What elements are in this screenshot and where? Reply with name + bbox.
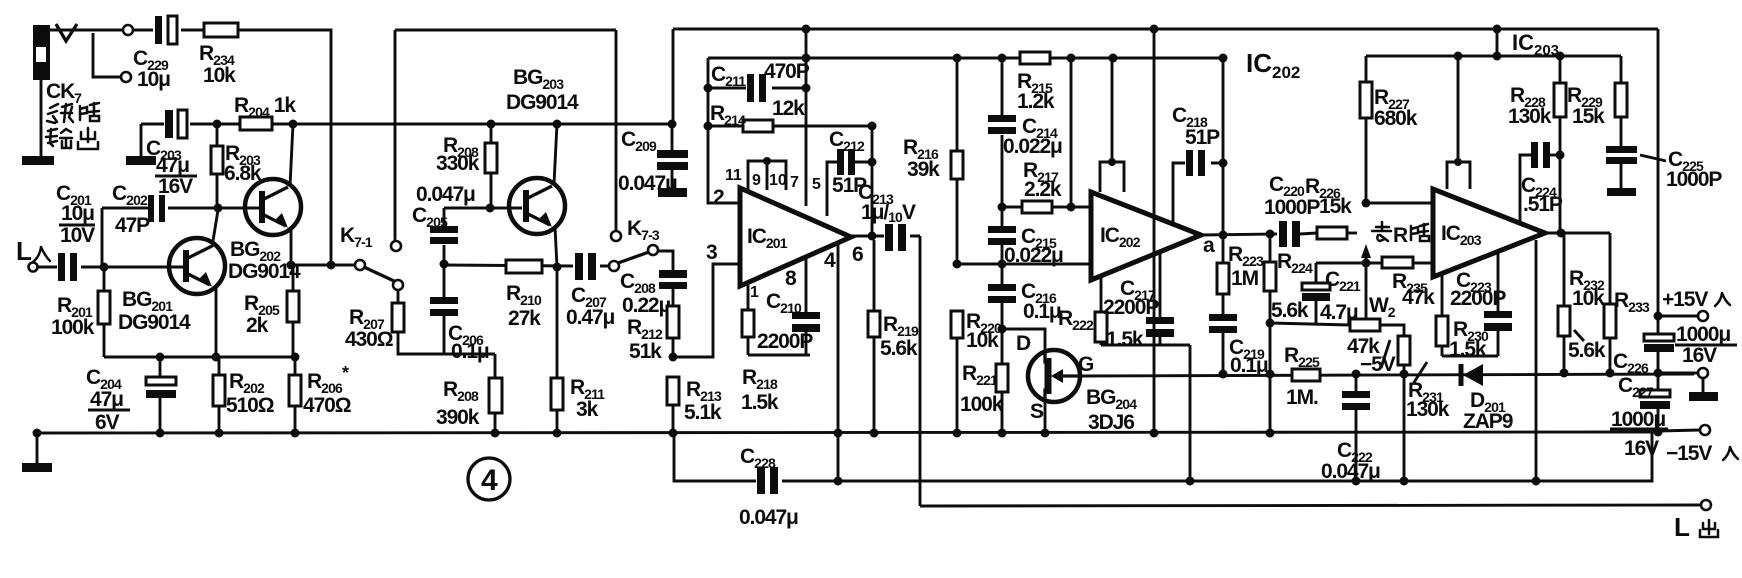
svg-text:.51P: .51P xyxy=(1523,193,1563,216)
svg-text:330k: 330k xyxy=(436,152,480,175)
svg-text:DG9014: DG9014 xyxy=(506,91,579,114)
svg-text:S: S xyxy=(1030,400,1044,423)
svg-text:0.047μ: 0.047μ xyxy=(618,172,677,195)
svg-text:0.47μ: 0.47μ xyxy=(566,306,614,329)
svg-text:1000P: 1000P xyxy=(1666,168,1722,191)
svg-text:51k: 51k xyxy=(629,340,662,363)
svg-text:6: 6 xyxy=(852,243,863,266)
svg-text:3: 3 xyxy=(706,241,717,264)
svg-text:7: 7 xyxy=(790,174,799,191)
svg-text:6V: 6V xyxy=(95,411,120,434)
svg-text:2: 2 xyxy=(713,186,724,209)
svg-text:16V: 16V xyxy=(158,175,193,198)
svg-text:10μ: 10μ xyxy=(61,202,94,225)
svg-text:9: 9 xyxy=(752,172,761,189)
svg-text:1000P: 1000P xyxy=(1264,196,1320,219)
svg-text:+15V: +15V xyxy=(1662,288,1708,311)
svg-text:130k: 130k xyxy=(1406,398,1450,421)
svg-text:1M.: 1M. xyxy=(1286,386,1318,409)
svg-text:0.1μ: 0.1μ xyxy=(1023,300,1061,323)
svg-text:4: 4 xyxy=(824,249,836,272)
svg-text:1.5k: 1.5k xyxy=(741,391,779,414)
svg-text:5.1k: 5.1k xyxy=(684,401,722,424)
svg-text:1: 1 xyxy=(750,284,759,301)
svg-text:5.6k: 5.6k xyxy=(880,337,918,360)
svg-text:0.1μ: 0.1μ xyxy=(451,340,489,363)
svg-text:10V: 10V xyxy=(60,224,95,247)
svg-text:−5V: −5V xyxy=(1360,353,1396,376)
svg-text:11: 11 xyxy=(725,167,742,184)
svg-text:47μ: 47μ xyxy=(156,154,189,177)
svg-text:47μ: 47μ xyxy=(90,388,123,411)
svg-text:0.047μ: 0.047μ xyxy=(739,506,798,529)
svg-text:10k: 10k xyxy=(1572,287,1605,310)
svg-text:1.5k: 1.5k xyxy=(1449,338,1487,361)
svg-text:0.022μ: 0.022μ xyxy=(1003,135,1062,158)
svg-text:3DJ6: 3DJ6 xyxy=(1088,411,1134,434)
svg-text:100k: 100k xyxy=(51,316,95,339)
svg-text:1.5k: 1.5k xyxy=(1106,328,1144,351)
svg-text:10: 10 xyxy=(769,172,787,189)
svg-text:47P: 47P xyxy=(115,214,150,237)
svg-text:470P: 470P xyxy=(764,60,810,83)
svg-text:100k: 100k xyxy=(960,393,1004,416)
svg-text:10μ: 10μ xyxy=(137,68,170,91)
svg-text:DG9014: DG9014 xyxy=(118,311,191,334)
svg-text:−15V: −15V xyxy=(1666,442,1712,465)
svg-text:12k: 12k xyxy=(772,97,805,120)
svg-text:1.2k: 1.2k xyxy=(1017,90,1055,113)
svg-text:39k: 39k xyxy=(907,158,940,181)
svg-text:1M: 1M xyxy=(1231,267,1259,290)
svg-text:15k: 15k xyxy=(1572,105,1605,128)
svg-text:10k: 10k xyxy=(966,329,999,352)
svg-text:4: 4 xyxy=(481,464,498,497)
svg-text:390k: 390k xyxy=(436,406,480,429)
svg-text:510Ω: 510Ω xyxy=(226,394,274,417)
svg-text:16V: 16V xyxy=(1624,437,1659,460)
svg-text:2k: 2k xyxy=(246,314,269,337)
svg-text:a: a xyxy=(1203,234,1215,257)
svg-text:8: 8 xyxy=(785,267,797,290)
svg-text:3k: 3k xyxy=(576,398,599,421)
svg-text:27k: 27k xyxy=(508,307,541,330)
svg-text:L: L xyxy=(16,236,32,266)
svg-text:470Ω: 470Ω xyxy=(303,394,351,417)
svg-text:0.047μ: 0.047μ xyxy=(416,183,475,206)
svg-text:G: G xyxy=(1078,353,1094,376)
svg-text:1000μ: 1000μ xyxy=(1676,323,1730,346)
svg-text:47k: 47k xyxy=(1402,286,1435,309)
svg-text:R: R xyxy=(1393,224,1408,247)
svg-text:0.1μ: 0.1μ xyxy=(1230,354,1268,377)
svg-text:430Ω: 430Ω xyxy=(345,328,393,351)
svg-text:D: D xyxy=(1016,332,1031,355)
svg-text:130k: 130k xyxy=(1508,105,1552,128)
svg-text:6.8k: 6.8k xyxy=(224,162,262,185)
svg-text:5: 5 xyxy=(812,176,821,193)
svg-text:2200P: 2200P xyxy=(1103,296,1159,319)
svg-text:5.6k: 5.6k xyxy=(1568,339,1606,362)
svg-text:2200P: 2200P xyxy=(757,330,813,353)
svg-text:0.047μ: 0.047μ xyxy=(1321,460,1380,483)
svg-text:2.2k: 2.2k xyxy=(1024,178,1062,201)
svg-text:680k: 680k xyxy=(1374,107,1418,130)
svg-text:16V: 16V xyxy=(1682,344,1717,367)
svg-text:51P: 51P xyxy=(1185,126,1220,149)
svg-text:10k: 10k xyxy=(203,64,236,87)
svg-text:2200P: 2200P xyxy=(1450,287,1506,310)
svg-text:5.6k: 5.6k xyxy=(1271,299,1309,322)
svg-text:0.22μ: 0.22μ xyxy=(622,294,670,317)
svg-text:L: L xyxy=(1674,512,1690,542)
svg-text:15k: 15k xyxy=(1319,195,1352,218)
svg-text:ZAP9: ZAP9 xyxy=(1463,410,1513,433)
